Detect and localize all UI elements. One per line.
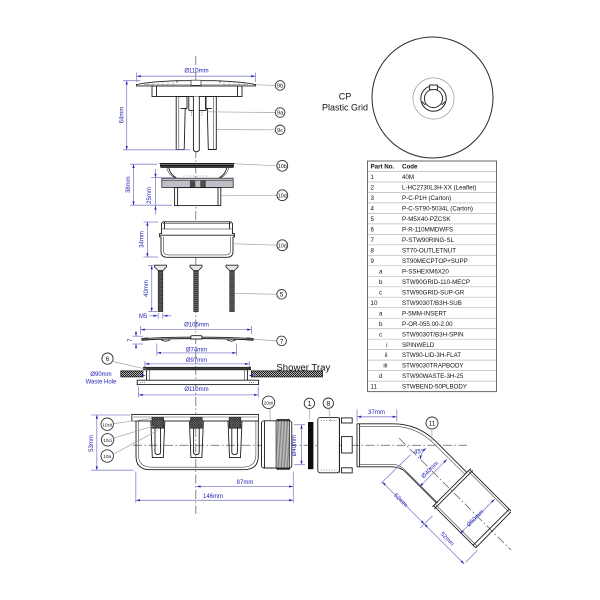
svg-text:Waste Hole: Waste Hole [86, 380, 117, 386]
svg-text:8: 8 [371, 247, 375, 254]
svg-text:2: 2 [371, 185, 375, 192]
svg-text:7: 7 [128, 338, 134, 342]
svg-text:10cii: 10cii [102, 422, 112, 427]
svg-text:Ø40mm: Ø40mm [421, 461, 440, 480]
svg-text:STW9030TRAPBODY: STW9030TRAPBODY [402, 363, 464, 370]
svg-text:8: 8 [326, 401, 330, 408]
svg-text:7: 7 [371, 237, 375, 244]
svg-text:P-OR-055.00-2.00: P-OR-055.00-2.00 [402, 321, 453, 328]
svg-text:a: a [379, 310, 383, 317]
svg-text:iii: iii [383, 363, 387, 370]
svg-text:STW9030T/B3H-SPIN: STW9030T/B3H-SPIN [402, 331, 464, 338]
svg-text:Plastic Grid: Plastic Grid [322, 103, 368, 113]
svg-text:6: 6 [371, 227, 375, 234]
svg-text:40M: 40M [402, 174, 414, 181]
svg-text:9a: 9a [277, 111, 284, 117]
svg-text:Code: Code [402, 164, 418, 171]
svg-text:P-5MM-INSERT: P-5MM-INSERT [402, 310, 447, 317]
svg-text:Part No.: Part No. [371, 164, 395, 171]
svg-text:5: 5 [371, 216, 375, 223]
svg-text:Shower Tray: Shower Tray [276, 362, 330, 373]
svg-text:Ø50mm: Ø50mm [466, 509, 485, 528]
svg-text:d: d [379, 373, 383, 380]
svg-text:53mm: 53mm [89, 435, 95, 452]
svg-text:87mm: 87mm [237, 480, 254, 486]
svg-text:Ø110mm: Ø110mm [184, 69, 208, 75]
svg-text:11: 11 [371, 384, 378, 391]
svg-text:L-HC2730L3H-XX (Leaflet): L-HC2730L3H-XX (Leaflet) [402, 185, 476, 192]
svg-text:Ø74mm: Ø74mm [186, 347, 207, 353]
svg-text:ST90MECPTOP+SUPP: ST90MECPTOP+SUPP [402, 258, 468, 265]
svg-text:1: 1 [371, 174, 375, 181]
svg-text:9c: 9c [277, 128, 283, 134]
svg-text:52mm: 52mm [439, 531, 455, 547]
svg-text:a: a [379, 268, 383, 275]
svg-text:40mm: 40mm [144, 280, 150, 297]
svg-text:STWBEND-50PLBODY: STWBEND-50PLBODY [402, 384, 467, 391]
svg-text:STW90WASTE-3H-25: STW90WASTE-3H-25 [402, 373, 464, 380]
svg-text:1: 1 [307, 401, 311, 408]
svg-text:Ø110mm: Ø110mm [184, 387, 208, 393]
svg-text:34mm: 34mm [140, 231, 146, 248]
svg-text:P-C-P1H (Carton): P-C-P1H (Carton) [402, 195, 451, 202]
svg-text:ST70-OUTLETNUT: ST70-OUTLETNUT [402, 247, 456, 254]
svg-text:9b: 9b [277, 84, 283, 90]
svg-text:P-STW90RING-SL: P-STW90RING-SL [402, 237, 454, 244]
svg-text:STW90-LID-3H-FLAT: STW90-LID-3H-FLAT [402, 352, 461, 359]
svg-text:37mm: 37mm [368, 410, 385, 416]
svg-text:10a: 10a [103, 454, 111, 459]
svg-text:5: 5 [280, 292, 284, 299]
svg-text:c: c [379, 289, 382, 296]
svg-text:11: 11 [429, 421, 436, 428]
svg-text:10b: 10b [278, 164, 287, 170]
svg-text:25mm: 25mm [147, 187, 153, 204]
svg-text:b: b [379, 321, 383, 328]
svg-text:b: b [379, 279, 383, 286]
svg-text:3: 3 [371, 195, 375, 202]
svg-text:10cii: 10cii [264, 400, 274, 405]
svg-text:10ci: 10ci [103, 438, 112, 443]
svg-text:Ø97mm: Ø97mm [186, 358, 207, 364]
svg-text:SPINWELD: SPINWELD [402, 342, 435, 349]
svg-text:M5: M5 [139, 314, 148, 320]
svg-text:CP: CP [339, 92, 352, 102]
svg-text:i: i [386, 342, 387, 349]
svg-text:10: 10 [371, 300, 378, 307]
svg-text:9: 9 [371, 258, 375, 265]
svg-text:P-SSHEXM6X20: P-SSHEXM6X20 [402, 268, 449, 275]
svg-text:Ø90mm: Ø90mm [90, 372, 111, 378]
svg-text:38mm: 38mm [126, 176, 132, 193]
svg-text:P-R-110MMDWFS: P-R-110MMDWFS [402, 227, 453, 234]
svg-text:STW90GRID-SUP-GR: STW90GRID-SUP-GR [402, 289, 465, 296]
svg-text:STW9030T/B3H-SUB: STW9030T/B3H-SUB [402, 300, 462, 307]
svg-text:52mm: 52mm [392, 493, 408, 509]
svg-text:Ø40mm: Ø40mm [292, 435, 298, 456]
svg-text:64mm: 64mm [120, 107, 126, 124]
svg-text:146mm: 146mm [203, 494, 223, 500]
svg-text:P-C-ST90-5034L (Carton): P-C-ST90-5034L (Carton) [402, 206, 473, 213]
svg-text:10d: 10d [278, 243, 287, 249]
svg-text:6: 6 [106, 356, 110, 363]
svg-text:STW90GRID-110-MECP: STW90GRID-110-MECP [402, 279, 470, 286]
svg-text:Ø105mm: Ø105mm [184, 322, 209, 328]
svg-text:ii: ii [385, 352, 388, 359]
svg-text:P-M5X40-PZCSK: P-M5X40-PZCSK [402, 216, 451, 223]
svg-text:c: c [379, 331, 382, 338]
svg-text:7: 7 [280, 338, 284, 345]
svg-text:4: 4 [371, 206, 375, 213]
svg-text:10d: 10d [278, 193, 287, 199]
